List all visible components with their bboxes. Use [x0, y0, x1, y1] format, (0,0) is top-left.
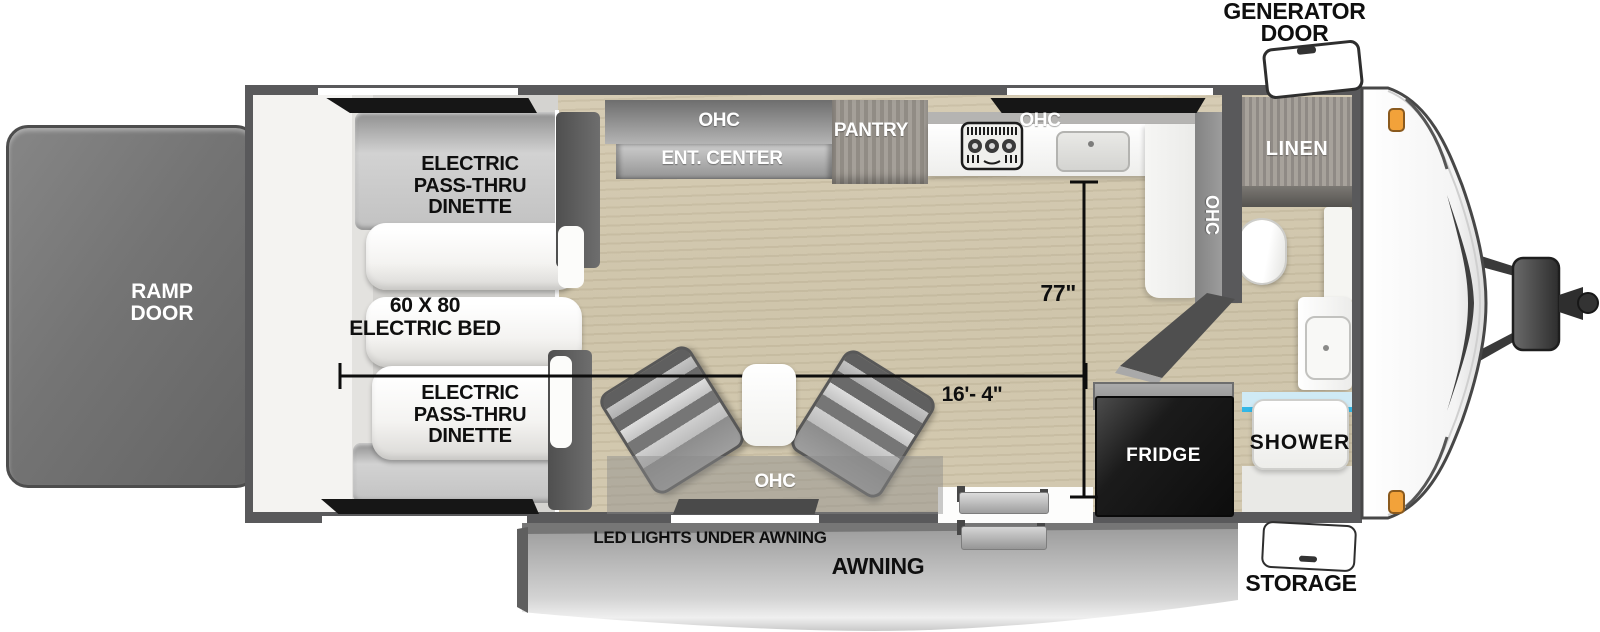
ent-center-label: ENT. CENTER	[622, 149, 822, 170]
linen-label: LINEN	[1242, 139, 1352, 161]
ohc-entertainment-label: OHC	[669, 111, 769, 132]
garage-led-strip	[322, 516, 527, 523]
pantry-label: PANTRY	[811, 121, 931, 142]
pantry-cabinet	[832, 100, 928, 184]
entry-step-lower	[961, 526, 1047, 550]
electric-bed-label: 60 X 80 ELECTRIC BED	[325, 295, 525, 340]
dinette-rear-label: ELECTRIC PASS-THRU DINETTE	[370, 383, 570, 448]
clearance-light-top	[1388, 108, 1405, 132]
dimension-16-4-label: 16'- 4"	[922, 384, 1022, 407]
clearance-light-bottom	[1388, 490, 1405, 514]
garage-window-top	[322, 98, 537, 113]
generator-door-label: GENERATOR DOOR	[1212, 0, 1377, 44]
ohc-kitchen-label: OHC	[990, 111, 1090, 132]
kitchen-bath-wall	[1222, 95, 1242, 303]
garage-window-strip-top	[318, 88, 518, 95]
dimension-77-label: 77"	[1000, 281, 1076, 306]
garage-window-bottom	[321, 499, 539, 514]
dinette-front-label: ELECTRIC PASS-THRU DINETTE	[370, 154, 570, 219]
hitch-ball-icon	[1578, 293, 1598, 313]
ohc-kitchen-side-label: OHC	[1196, 180, 1222, 250]
wall-rear	[245, 85, 253, 523]
angled-bath-wall	[1110, 288, 1250, 388]
storage-door-handle-icon	[1299, 556, 1317, 563]
entry-step-upper	[959, 492, 1049, 514]
sofa-led-strip	[671, 515, 819, 523]
awning-label: AWNING	[812, 554, 944, 579]
fridge-label: FRIDGE	[1095, 446, 1232, 467]
propane-tank-cover	[1513, 258, 1559, 350]
linen-closet-base	[1242, 186, 1352, 207]
toilet-icon	[1239, 220, 1285, 283]
bed-cushion-front	[366, 223, 578, 290]
bath-faucet-icon	[1323, 345, 1329, 351]
storage-label: STORAGE	[1238, 571, 1364, 596]
ohc-sofa-label: OHC	[725, 472, 825, 493]
front-cap-body	[1362, 88, 1486, 518]
front-cap	[1340, 75, 1600, 535]
shower-floor	[1242, 466, 1352, 512]
dinette-armrest-front-cushion	[558, 226, 584, 288]
kitchen-sink-icon	[1056, 131, 1130, 172]
floorplan-canvas: RAMP DOOR ELECTRIC PASS-THRU DINETTE 60 …	[0, 0, 1600, 632]
side-table	[742, 364, 796, 446]
kitchen-window-strip	[1007, 88, 1213, 95]
led-lights-label: LED LIGHTS UNDER AWNING	[572, 529, 848, 547]
storage-door	[1261, 521, 1357, 573]
ramp-door-label: RAMP DOOR	[102, 281, 222, 325]
kitchen-faucet-icon	[1088, 141, 1094, 147]
